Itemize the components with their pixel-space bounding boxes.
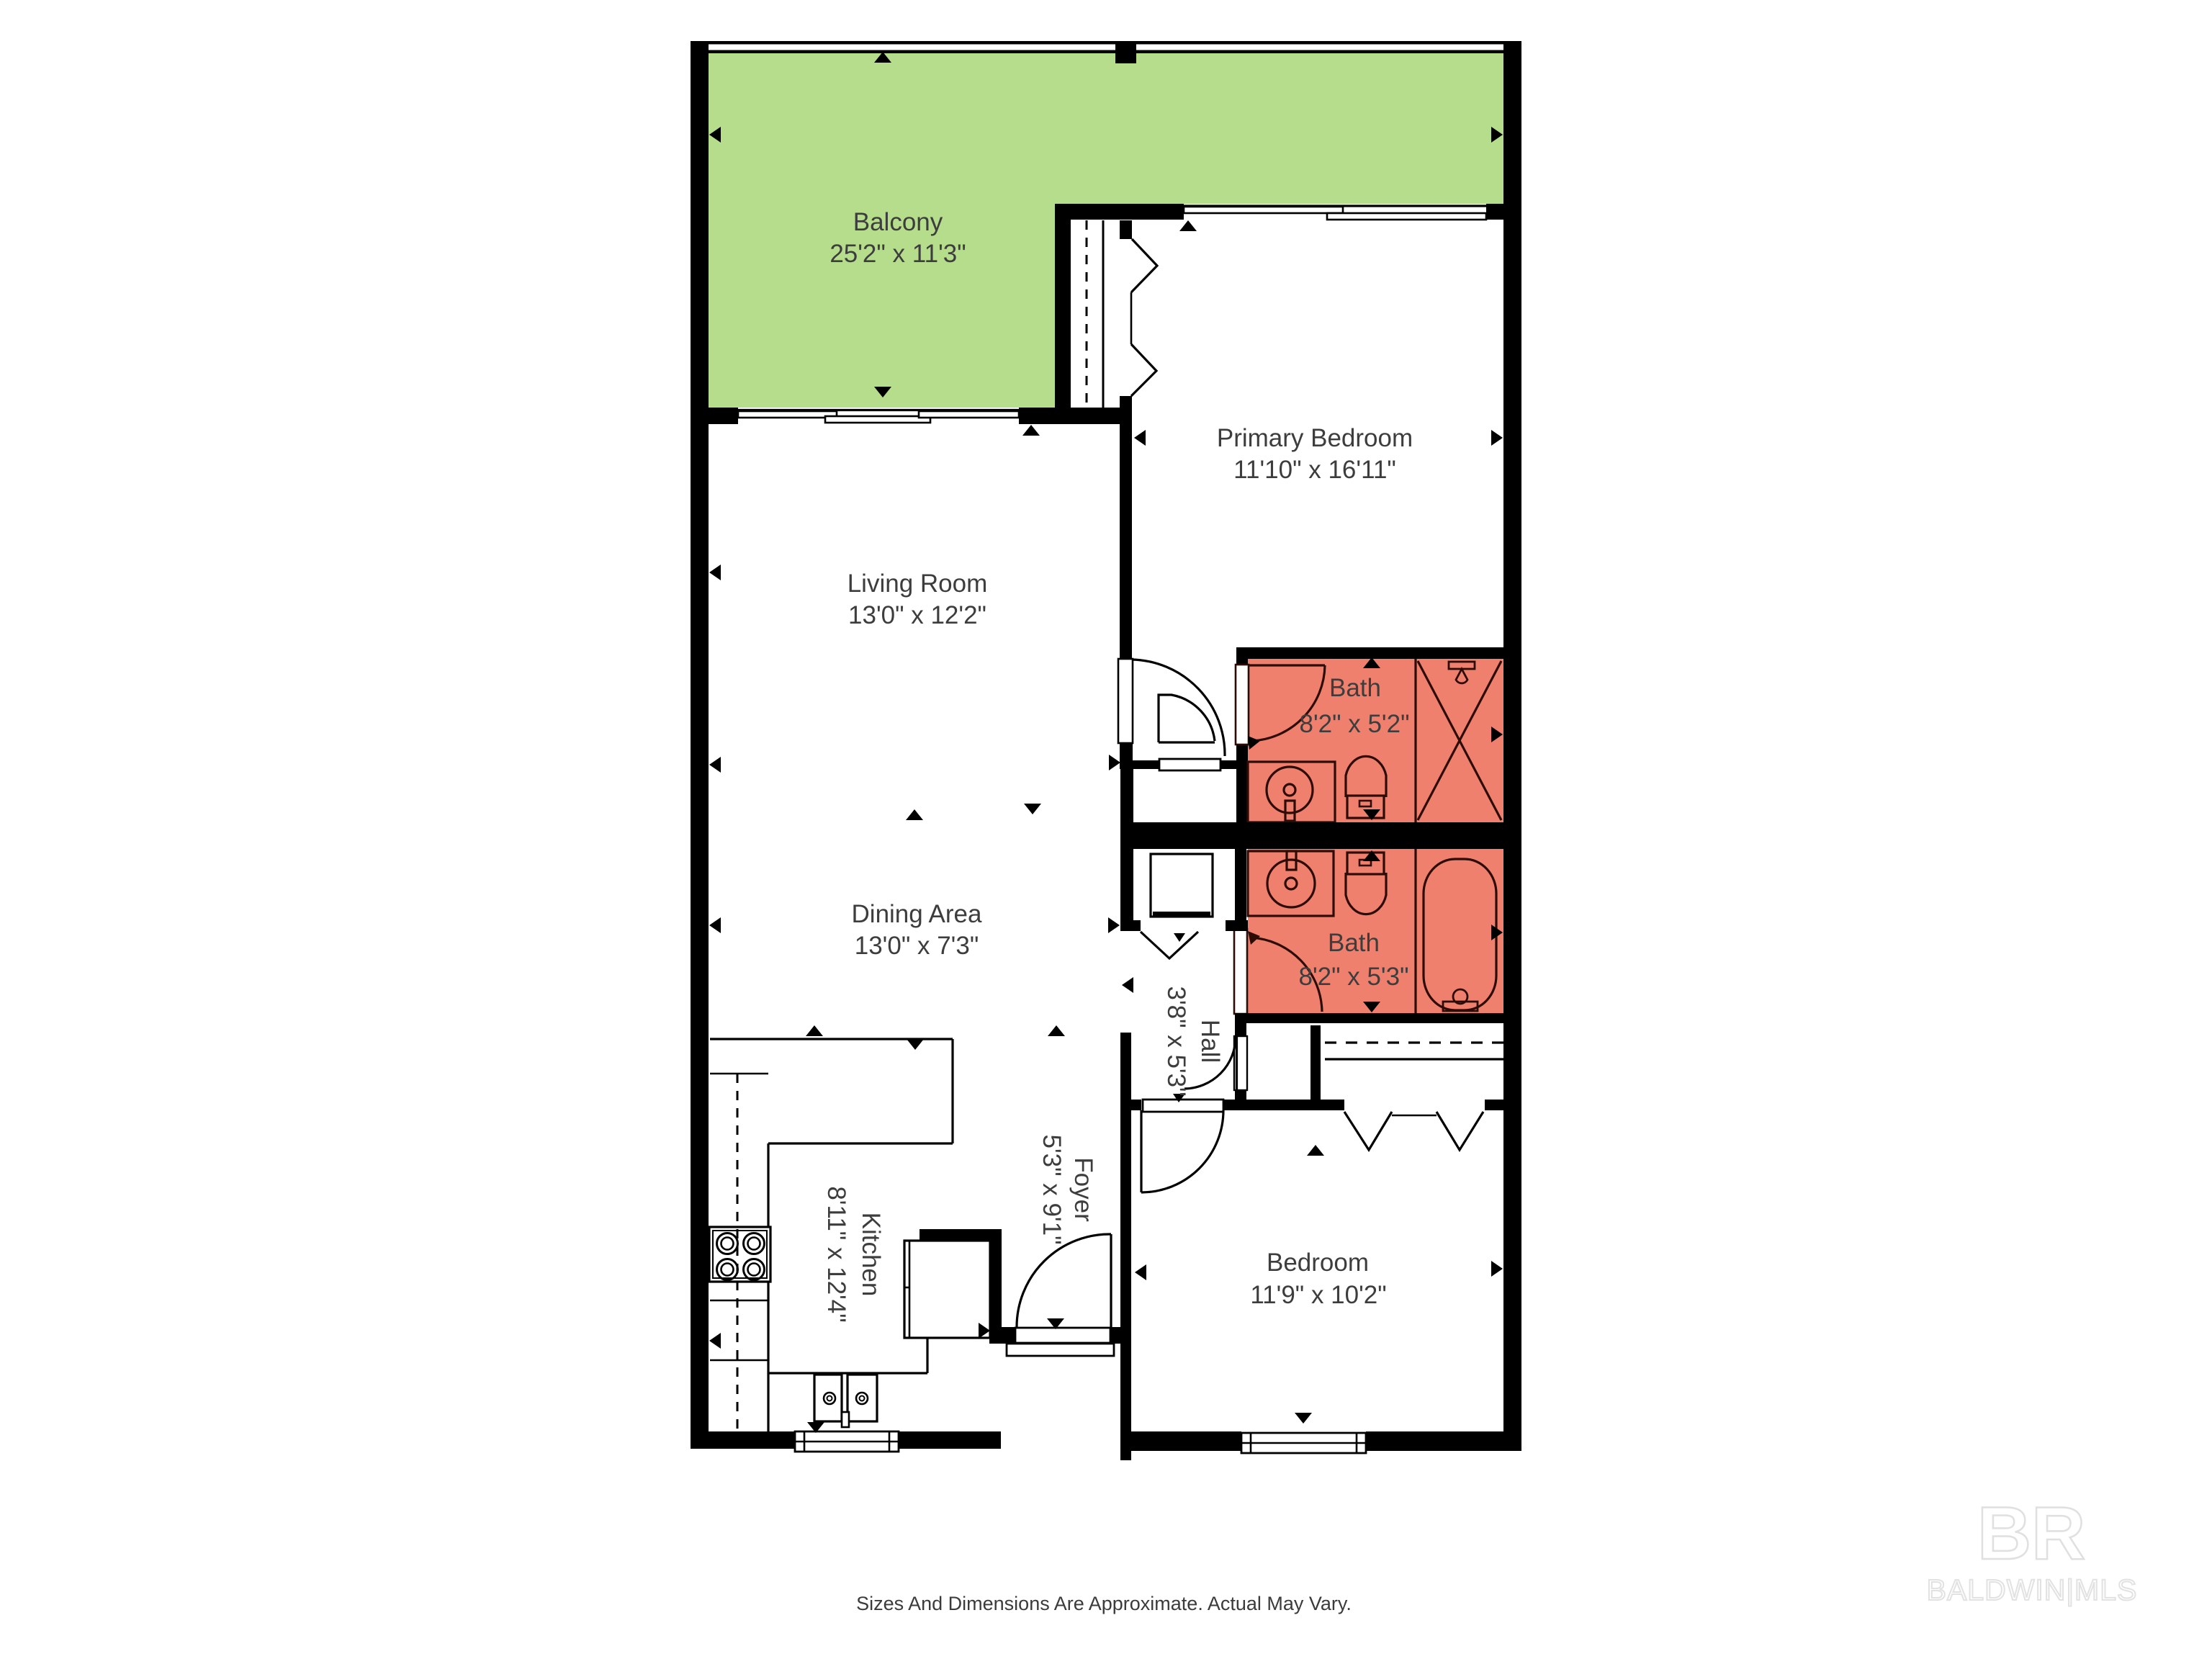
svg-text:11'10" x 16'11": 11'10" x 16'11" (1233, 456, 1396, 484)
svg-text:BR: BR (1977, 1492, 2085, 1575)
svg-text:Dining Area: Dining Area (852, 900, 982, 928)
svg-text:Balcony: Balcony (853, 208, 943, 236)
svg-text:Bath: Bath (1329, 674, 1381, 702)
svg-text:25'2" x 11'3": 25'2" x 11'3" (829, 240, 966, 268)
svg-text:13'0" x 7'3": 13'0" x 7'3" (855, 932, 979, 960)
svg-text:3'8" x 5'3": 3'8" x 5'3" (1162, 986, 1190, 1096)
svg-text:Bedroom: Bedroom (1267, 1249, 1369, 1277)
svg-text:Kitchen: Kitchen (857, 1213, 885, 1297)
svg-text:Sizes And Dimensions Are Appro: Sizes And Dimensions Are Approximate. Ac… (856, 1593, 1352, 1614)
svg-text:Living Room: Living Room (848, 570, 988, 598)
svg-text:8'2" x 5'2": 8'2" x 5'2" (1299, 710, 1409, 738)
svg-text:Foyer: Foyer (1069, 1157, 1097, 1222)
svg-text:Primary Bedroom: Primary Bedroom (1217, 424, 1413, 452)
svg-text:8'11" x 12'4": 8'11" x 12'4" (822, 1186, 850, 1322)
svg-text:11'9" x 10'2": 11'9" x 10'2" (1250, 1281, 1386, 1309)
svg-text:13'0" x 12'2": 13'0" x 12'2" (848, 601, 986, 629)
svg-text:5'3" x 9'1": 5'3" x 9'1" (1038, 1134, 1066, 1244)
svg-text:Hall: Hall (1196, 1020, 1224, 1063)
svg-text:Bath: Bath (1328, 929, 1380, 957)
svg-text:BALDWIN|MLS: BALDWIN|MLS (1927, 1573, 2138, 1606)
svg-text:8'2" x 5'3": 8'2" x 5'3" (1298, 963, 1408, 991)
